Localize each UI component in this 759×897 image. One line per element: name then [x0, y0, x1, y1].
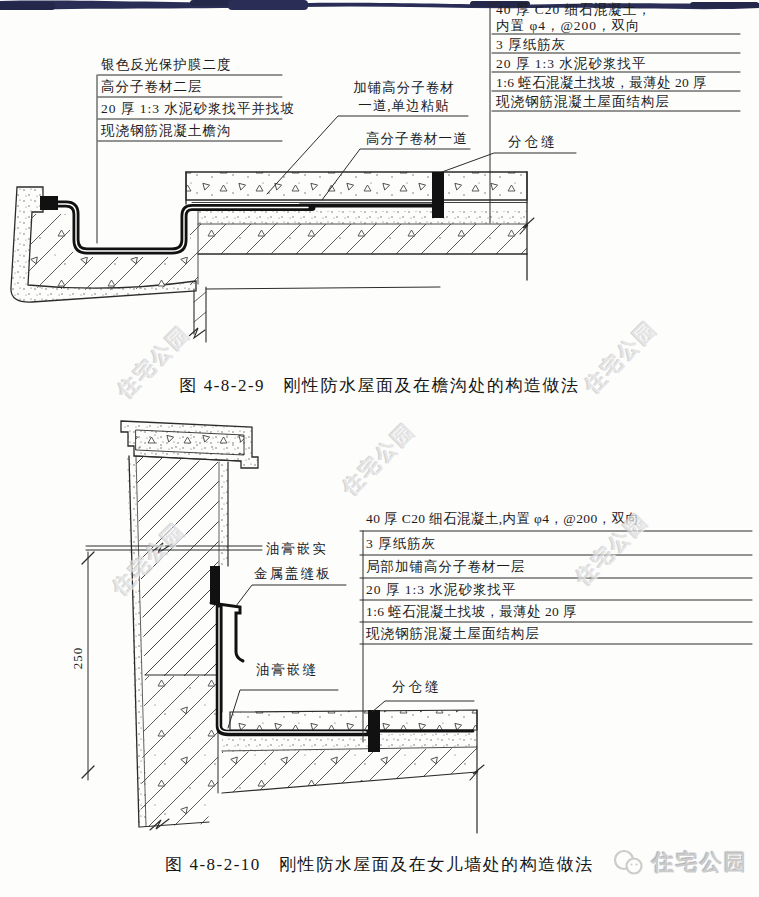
fig2-label-paper-lime: 3 厚纸筋灰: [366, 535, 436, 553]
fig2-dividing-joint: [368, 710, 380, 752]
fig1-dividing-joint: [432, 172, 444, 218]
fig1-label-extra-membrane-line1: 加铺高分子卷材: [340, 79, 468, 97]
fig2-label-vermiculite-slope: 1:6 蛭石混凝土找坡，最薄处 20 厚: [366, 603, 577, 621]
fig1-caption: 图 4-8-2-9 刚性防水屋面及在檐沟处的构造做法: [0, 374, 759, 397]
fig2-label-local-membrane: 局部加铺高分子卷材一层: [366, 558, 526, 576]
fig1-label-c20-concrete-line2: 内置 φ4，@200，双向: [496, 17, 641, 35]
chat-bubbles-icon: [612, 848, 646, 878]
fig2-label-c20-concrete: 40 厚 C20 细石混凝土,内置 φ4，@200，双向: [366, 510, 639, 528]
fig1-label-extra-membrane-line2: 一道,单边粘贴: [340, 97, 468, 115]
book-scan-page: 银色反光保护膜二度 高分子卷材二层 20 厚 1:3 水泥砂浆找平并找坡 现浇钢…: [0, 0, 759, 897]
fig2-sealant-groove: [210, 566, 220, 604]
fig1-label-cast-gutter: 现浇钢筋混凝土檐沟: [101, 122, 232, 140]
fig2-label-cover-plate: 金属盖缝板: [254, 565, 332, 583]
fig1-label-membrane-one-ply: 高分子卷材一道: [366, 130, 468, 148]
fig1-label-structural-slab: 现浇钢筋混凝土屋面结构层: [496, 93, 670, 111]
fig1-label-paper-lime: 3 厚纸筋灰: [496, 36, 566, 54]
fig2-dimension-250: 250: [70, 638, 86, 678]
fig2-label-cement-mortar: 20 厚 1:3 水泥砂浆找平: [366, 581, 516, 599]
fig2-label-sealant-joint: 油膏嵌缝: [256, 661, 318, 679]
fig1-label-protective-film: 银色反光保护膜二度: [101, 56, 232, 74]
fig1-label-vermiculite-slope: 1:6 蛭石混凝土找坡，最薄处 20 厚: [496, 74, 707, 92]
fig2-label-sealant-packed: 油膏嵌实: [266, 540, 328, 558]
fig1-label-membrane-two-ply: 高分子卷材二层: [101, 78, 203, 96]
fig1-label-dividing-joint: 分仓缝: [508, 133, 558, 151]
fig2-label-dividing-joint: 分仓缝: [392, 678, 442, 696]
fig1-label-cement-mortar: 20 厚 1:3 水泥砂浆找平: [496, 55, 646, 73]
figure1-eave-gutter-section: [11, 3, 740, 342]
fig1-label-mortar-leveling: 20 厚 1:3 水泥砂浆找平并找坡: [101, 100, 295, 118]
brand-logo: 住宅公园: [612, 848, 748, 878]
fig2-label-structural-slab: 现浇钢筋混凝土屋面结构层: [366, 625, 540, 643]
brand-name: 住宅公园: [652, 848, 748, 878]
